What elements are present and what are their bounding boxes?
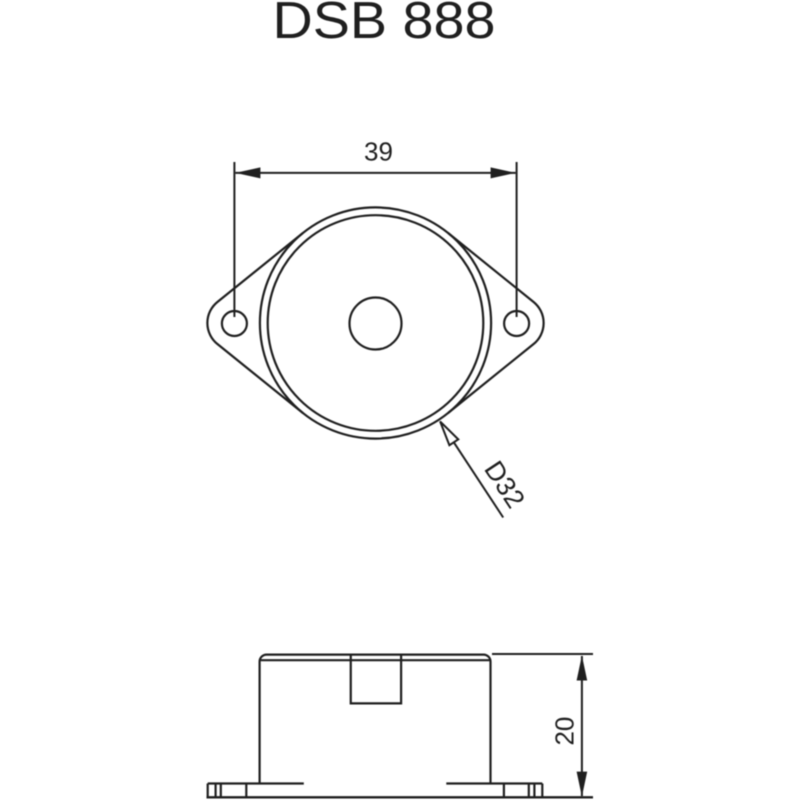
svg-text:39: 39 — [364, 137, 393, 167]
svg-text:D32: D32 — [478, 456, 530, 514]
svg-text:20: 20 — [550, 717, 580, 746]
svg-text:DSB 888: DSB 888 — [273, 0, 496, 50]
